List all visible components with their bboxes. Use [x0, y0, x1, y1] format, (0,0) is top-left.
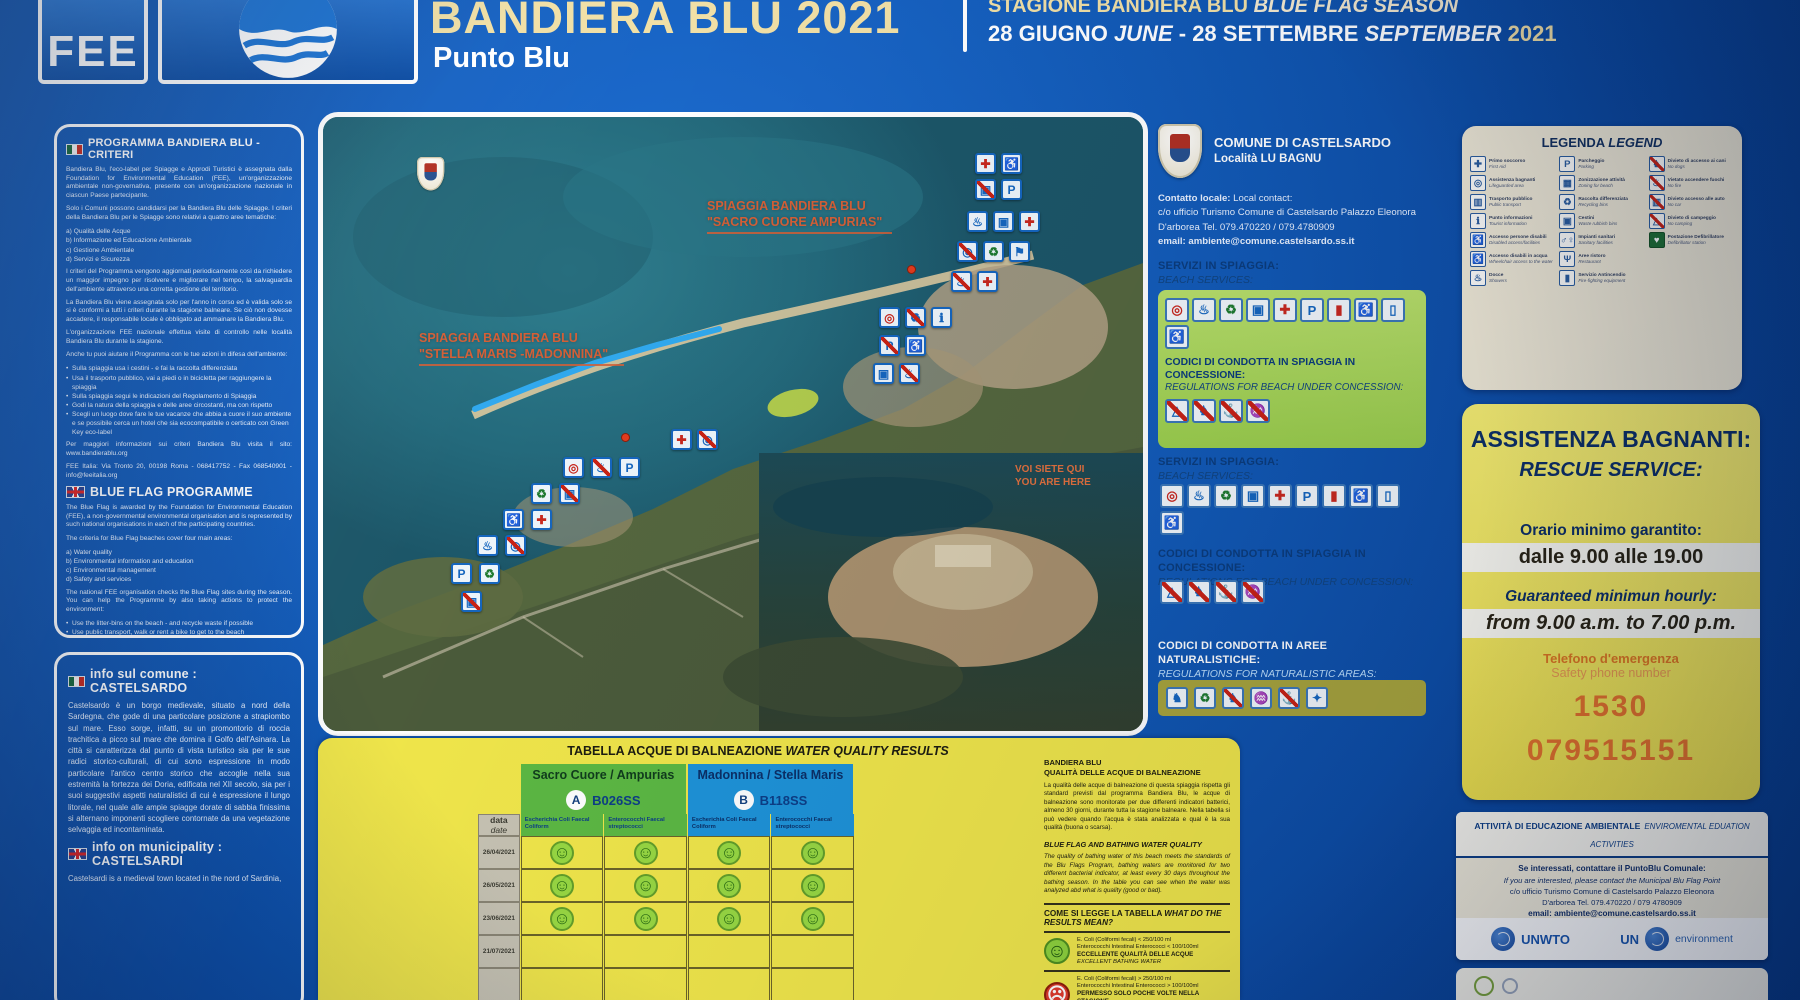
map-marker-icon: ℹ	[931, 307, 952, 328]
result-cell	[771, 968, 854, 1000]
legend-item: ♥ Postazione DefibrillatoreDefibrillator…	[1649, 232, 1734, 248]
result-cell: ☺	[521, 836, 604, 869]
legend-item: ♻ Raccolta differenziataRecycling bins	[1559, 194, 1644, 210]
legend-item: ▦ Zonizzazione attivitàZoning for beach	[1559, 175, 1644, 191]
result-cell	[604, 935, 687, 968]
result-cell: ☺	[688, 902, 771, 935]
list-item: Sulla spiaggia segui le indicazioni del …	[66, 392, 292, 401]
locality-name: Località LU BAGNU	[1214, 152, 1391, 168]
sample-date	[478, 968, 520, 1000]
season-label-en: BLUE FLAG SEASON	[1254, 0, 1458, 17]
legend-item: ♿ Accesso disabili in acquaWheelchair ac…	[1470, 251, 1555, 267]
uk-flag-icon	[66, 486, 85, 498]
legend-icon: ▦	[1559, 175, 1575, 191]
legend-item: ▥ Trasporto pubblicoPublic transport	[1470, 194, 1555, 210]
paragraph: Solo i Comuni possono candidarsi per la …	[66, 205, 292, 222]
result-cell	[521, 935, 604, 968]
legend-icon: ✚	[1470, 156, 1486, 172]
legend-icon: ♿	[1470, 251, 1486, 267]
hours-value-it: dalle 9.00 alle 19.00	[1462, 543, 1760, 572]
you-are-here-inset	[723, 453, 1143, 731]
legend-box: LEGENDA LEGEND ✚ Primo soccorsoFirst Aid…	[1462, 126, 1742, 390]
service-icon: ▮	[1322, 484, 1346, 508]
rescue-title-en: RESCUE SERVICE:	[1462, 459, 1760, 482]
result-cell: ☺	[604, 869, 687, 902]
map-marker-icon: ◎	[957, 241, 978, 262]
eco-tips-list: Sulla spiaggia usa i cestini - e fai la …	[66, 364, 292, 437]
naturalistic-icon: ♞	[1166, 687, 1188, 709]
paragraph: Bandiera Blu, l'eco-label per Spiagge e …	[66, 166, 292, 201]
legend-column-2: P ParcheggioParking ▦ Zonizzazione attiv…	[1559, 156, 1644, 286]
map-marker-icon: ♻	[905, 307, 926, 328]
map-marker-icon	[907, 265, 916, 274]
legend-item: ♨ DocceShowers	[1470, 270, 1555, 286]
unwto-globe-icon	[1491, 927, 1515, 951]
paragraph: The Blue Flag is awarded by the Foundati…	[66, 504, 292, 530]
sample-date: 21/07/2021	[478, 935, 520, 968]
legend-item: ▥ Divieto accesso alle autoNo car	[1649, 194, 1734, 210]
hours-label-it: Orario minimo garantito:	[1462, 522, 1760, 540]
italy-flag-icon	[68, 676, 85, 687]
wave-icon	[236, 0, 340, 81]
list-item: a) Water quality	[66, 548, 292, 557]
legend-icon: △	[1649, 213, 1665, 229]
beach-a-name: Sacro Cuore / Ampurias	[521, 764, 686, 786]
legend-item: ✚ Primo soccorsoFirst Aid	[1470, 156, 1555, 172]
service-icon: P	[1300, 298, 1324, 322]
smiley-bad-icon: ☹	[1044, 982, 1070, 1000]
water-quality-table: Sacro Cuore / Ampurias Madonnina / Stell…	[478, 764, 854, 1000]
service-icon: ♿	[1165, 325, 1189, 349]
paragraph: L'organizzazione FEE nazionale effettua …	[66, 329, 292, 346]
service-icon: ▣	[1241, 484, 1265, 508]
naturalistic-icon: ♻	[1194, 687, 1216, 709]
legend-icon: ℹ	[1470, 213, 1486, 229]
map-marker-icon: P	[1001, 179, 1022, 200]
naturalistic-icon: ⚓	[1278, 687, 1300, 709]
list-item: c) Environmental management	[66, 566, 292, 575]
map-marker-icon: ▣	[993, 211, 1014, 232]
prohibition-icon: ♞	[1192, 399, 1216, 423]
paragraph: The quality of bathing water of this bea…	[1044, 853, 1230, 896]
beach-label-sacro-cuore: SPIAGGIA BANDIERA BLU"SACRO CUORE AMPURI…	[707, 199, 892, 234]
page-title: BANDIERA BLU 2021	[430, 0, 900, 44]
column-header: Escherichia Coli Faecal Coliform	[688, 814, 771, 836]
sample-date: 26/04/2021	[478, 836, 520, 869]
legend-icon: P	[1559, 156, 1575, 172]
result-cell: ☺	[521, 869, 604, 902]
result-cell: ☺	[688, 836, 771, 869]
legend-column-1: ✚ Primo soccorsoFirst Aid ◎ Assistenza b…	[1470, 156, 1555, 286]
result-cell	[771, 935, 854, 968]
legend-icon: ♨	[1470, 270, 1486, 286]
legend-icon: ▥	[1649, 194, 1665, 210]
beach-a-code: B026SS	[592, 793, 640, 808]
column-header: Enterococchi Faecal streptococci	[771, 814, 854, 836]
criteria-list-en: a) Water qualityb) Environmental informa…	[66, 548, 292, 585]
map-marker-icon: ♻	[983, 241, 1004, 262]
naturalistic-icon: ♞	[1222, 687, 1244, 709]
map-marker-icon: ⚑	[1009, 241, 1030, 262]
prohibition-icon: ⚓	[1219, 399, 1243, 423]
legend-item: ♨ Vietato accendere fuochiNo fire	[1649, 175, 1734, 191]
sampling-point-a: A	[566, 790, 586, 810]
map-marker-icon: ◎	[697, 429, 718, 450]
legend-item: ▮ Servizio AntincendioFire-fighting equi…	[1559, 270, 1644, 286]
list-item: a) Qualità delle Acque	[66, 227, 292, 236]
table-row: 21/07/2021	[478, 935, 854, 968]
prohibition-icon: △	[1160, 580, 1184, 604]
service-icon: ✚	[1268, 484, 1292, 508]
programma-criteri-panel: PROGRAMMA BANDIERA BLU - CRITERI Bandier…	[54, 124, 304, 638]
result-cell: ☺	[688, 869, 771, 902]
paragraph: La qualità delle acque di balneazione di…	[1044, 782, 1230, 833]
map-marker-icon: ◎	[879, 307, 900, 328]
legend-icon: ◎	[1470, 175, 1486, 191]
section-heading: info sul comune : CASTELSARDO	[90, 667, 290, 695]
service-icon: ◎	[1165, 298, 1189, 322]
map-marker-icon: ♻	[531, 483, 552, 504]
legend-item: △ Divieto di campeggioNo camping	[1649, 213, 1734, 229]
emergency-phone-label-it: Telefono d'emergenza	[1462, 651, 1760, 666]
castelsardo-crest	[1158, 124, 1202, 178]
legend-item: Ψ Aree ristoroRestaurant	[1559, 251, 1644, 267]
service-icon: ♿	[1354, 298, 1378, 322]
map-marker-icon: ♿	[905, 335, 926, 356]
map-marker-icon: ♿	[1001, 153, 1022, 174]
list-item: b) Environmental information and educati…	[66, 557, 292, 566]
hours-label-en: Guaranteed minimun hourly:	[1462, 588, 1760, 606]
codici-heading-1: CODICI DI CONDOTTA IN SPIAGGIA IN CONCES…	[1165, 356, 1419, 394]
blue-flag-information-board: FEE BANDIERA BLU 2021 Punto Blu STAGIONE…	[0, 0, 1800, 1000]
service-icon: ♻	[1214, 484, 1238, 508]
prohibition-icon: △	[1165, 399, 1189, 423]
servizi-heading-2: SERVIZI IN SPIAGGIA:BEACH SERVICES:	[1158, 456, 1426, 483]
legend-icon: ♞	[1649, 156, 1665, 172]
paragraph: Per maggiori informazioni sui criteri Ba…	[66, 441, 292, 458]
legend-item: P ParcheggioParking	[1559, 156, 1644, 172]
servizi-heading-1: SERVIZI IN SPIAGGIA:BEACH SERVICES:	[1158, 260, 1426, 287]
header-divider	[963, 0, 967, 52]
emergency-number-1530: 1530	[1462, 690, 1760, 724]
service-icon: ♨	[1187, 484, 1211, 508]
map-marker-icon: ✚	[671, 429, 692, 450]
beach-b-code: B118SS	[760, 793, 808, 808]
section-heading: info on municipality : CASTELSARDI	[92, 840, 290, 868]
legend-icon: ♥	[1649, 232, 1665, 248]
legend-icon: ♨	[1649, 175, 1665, 191]
result-cell	[521, 968, 604, 1000]
list-item: b) Informazione ed Educazione Ambientale	[66, 236, 292, 245]
fee-logo: FEE	[38, 0, 148, 84]
list-item: c) Gestione Ambientale	[66, 246, 292, 255]
map-marker-icon: ✚	[1019, 211, 1040, 232]
hours-value-en: from 9.00 a.m. to 7.00 p.m.	[1462, 609, 1760, 638]
map-marker-icon: ▣	[461, 591, 482, 612]
list-item: d) Safety and services	[66, 575, 292, 584]
sample-date: 26/05/2021	[478, 869, 520, 902]
legend-icon: ▥	[1470, 194, 1486, 210]
section-heading: PROGRAMMA BANDIERA BLU - CRITERI	[88, 137, 292, 161]
emergency-number-local: 079515151	[1462, 734, 1760, 768]
list-item: Obey the beach code of conduct	[66, 637, 292, 638]
paragraph: Anche tu puoi aiutare il Programma con l…	[66, 351, 292, 360]
eco-tips-list-en: Use the litter-bins on the beach - and r…	[66, 619, 292, 638]
criteria-list: a) Qualità delle Acqueb) Informazione ed…	[66, 227, 292, 264]
list-item: Usa il trasporto pubblico, vai a piedi o…	[66, 374, 292, 392]
prohibition-icon: ♞	[1187, 580, 1211, 604]
map-marker-icon: ✚	[977, 271, 998, 292]
list-item: Godi la natura della spiaggia e delle ar…	[66, 401, 292, 410]
municipality-info-panel: info sul comune : CASTELSARDO Castelsard…	[54, 652, 304, 1000]
edu-title-it: ATTIVITÀ DI EDUCAZIONE AMBIENTALE	[1474, 821, 1640, 831]
table-body: 26/04/2021 ☺ ☺ ☺ ☺ 26/05/2021 ☺ ☺ ☺ ☺	[478, 836, 854, 1000]
map-marker-icon: ◎	[505, 535, 526, 556]
uk-flag-icon	[68, 848, 87, 860]
legend-item: ♿ Accesso persone disabiliDisabled acces…	[1470, 232, 1555, 248]
map-marker-icon	[621, 433, 630, 442]
list-item: d) Servizi e Sicurezza	[66, 255, 292, 264]
beach-b-name: Madonnina / Stella Maris	[688, 764, 853, 786]
sample-date: 23/06/2021	[478, 902, 520, 935]
date-column-header: datadate	[478, 814, 520, 836]
naturalistic-icon: ♒	[1250, 687, 1272, 709]
column-header: Enterococchi Faecal streptococci	[604, 814, 687, 836]
beach-services-panel: COMUNE DI CASTELSARDO Località LU BAGNU …	[1158, 120, 1426, 724]
map-marker-icon: ▣	[975, 179, 996, 200]
paragraph: Castelsardi is a medieval town located i…	[68, 873, 290, 884]
municipality-name: COMUNE DI CASTELSARDO	[1214, 134, 1391, 152]
water-quality-explanation: BANDIERA BLU QUALITÀ DELLE ACQUE DI BALN…	[1044, 758, 1230, 1000]
list-item: Scegli un luogo dove fare le tue vacanze…	[66, 410, 292, 437]
result-cell	[688, 935, 771, 968]
service-icon: ♿	[1160, 511, 1184, 535]
italy-flag-icon	[66, 144, 83, 155]
map-marker-icon: ✚	[975, 153, 996, 174]
map-marker-icon: ♨	[591, 457, 612, 478]
service-icon: ▯	[1376, 484, 1400, 508]
emergency-phone-label-en: Safety phone number	[1462, 666, 1760, 680]
local-contact: Contatto locale: Local contact: c/o uffi…	[1158, 192, 1416, 250]
legend-item: ♞ Divieto di accesso ai caniNo dogs	[1649, 156, 1734, 172]
column-header: Escherichia Coli Faecal Coliform	[521, 814, 604, 836]
table-row: 26/05/2021 ☺ ☺ ☺ ☺	[478, 869, 854, 902]
map-marker-icon: ♨	[477, 535, 498, 556]
season-dates: STAGIONE BANDIERA BLU BLUE FLAG SEASON 2…	[988, 0, 1608, 47]
map-marker-icon: ◎	[563, 457, 584, 478]
map-marker-icon: P	[619, 457, 640, 478]
paragraph: The criteria for Blue Flag beaches cover…	[66, 535, 292, 544]
result-cell: ☺	[771, 869, 854, 902]
prohibition-icons-row-2: △♞⚓♒	[1160, 580, 1265, 604]
sampling-point-b: B	[734, 790, 754, 810]
page-subtitle: Punto Blu	[433, 42, 570, 75]
partial-logo-box	[1456, 968, 1768, 1000]
table-row: 26/04/2021 ☺ ☺ ☺ ☺	[478, 836, 854, 869]
service-icons-row-2: ◎♨♻▣✚P▮♿▯♿	[1160, 484, 1426, 535]
legend-item: ▣ CestiniWaste rubbish bins	[1559, 213, 1644, 229]
result-cell: ☺	[771, 902, 854, 935]
result-cell: ☺	[521, 902, 604, 935]
map-marker-icon: P	[879, 335, 900, 356]
legend-icon: ♿	[1470, 232, 1486, 248]
environmental-education-box: ATTIVITÀ DI EDUCAZIONE AMBIENTALEENVIROM…	[1456, 812, 1768, 960]
map-marker-icon: P	[451, 563, 472, 584]
list-item: Sulla spiaggia usa i cestini - e fai la …	[66, 364, 292, 373]
service-icons-row: ◎♨♻▣✚P▮♿▯♿	[1165, 298, 1419, 349]
legend-icon: ♂♀	[1559, 232, 1575, 248]
rescue-title-it: ASSISTENZA BAGNANTI:	[1462, 404, 1760, 453]
map-marker-icon: ♨	[951, 271, 972, 292]
prohibition-icon: ♒	[1241, 580, 1265, 604]
aerial-map: SPIAGGIA BANDIERA BLU"SACRO CUORE AMPURI…	[318, 112, 1148, 736]
list-item: Use the litter-bins on the beach - and r…	[66, 619, 292, 628]
beach-label-stella-maris: SPIAGGIA BANDIERA BLU"STELLA MARIS -MADO…	[419, 331, 624, 366]
legend-item: ◎ Assistenza bagnantiLifeguarded area	[1470, 175, 1555, 191]
prohibition-icon: ⚓	[1214, 580, 1238, 604]
map-marker-icon: ▣	[873, 363, 894, 384]
un-environment-logo: UN environment	[1620, 927, 1733, 951]
partial-circle-logo-icon-2	[1502, 978, 1518, 994]
paragraph: The national FEE organisation checks the…	[66, 589, 292, 615]
service-icon: P	[1295, 484, 1319, 508]
table-row	[478, 968, 854, 1000]
section-heading: BLUE FLAG PROGRAMME	[90, 485, 253, 499]
rescue-service-box: ASSISTENZA BAGNANTI: RESCUE SERVICE: Ora…	[1462, 404, 1760, 800]
service-icon: ♿	[1349, 484, 1373, 508]
prohibition-icons-row: △♞⚓♒	[1165, 399, 1419, 423]
service-icon: ▣	[1246, 298, 1270, 322]
service-icon: ▯	[1381, 298, 1405, 322]
season-label-it: STAGIONE BANDIERA BLU	[988, 0, 1248, 17]
legend-icon: Ψ	[1559, 251, 1575, 267]
water-quality-panel: TABELLA ACQUE DI BALNEAZIONE WATER QUALI…	[318, 738, 1240, 1000]
table-title-en: WATER QUALITY RESULTS	[786, 744, 949, 758]
legend-icon: ▣	[1559, 213, 1575, 229]
paragraph: FEE Italia: Via Tronto 20, 00198 Roma - …	[66, 463, 292, 480]
service-icon: ✚	[1273, 298, 1297, 322]
castelsardo-crest-on-map	[417, 157, 444, 190]
fee-logo-label: FEE	[47, 30, 139, 80]
legend-item: ℹ Punto informazioniTourist information	[1470, 213, 1555, 229]
bad-result-legend: ☹ E. Coli (Coliformi fecali) > 250/100 m…	[1044, 976, 1230, 1000]
blue-flag-wave-logo	[158, 0, 418, 84]
naturalistic-icons-row: ♞♻♞♒⚓✦	[1158, 680, 1426, 716]
you-are-here-label: VOI SIETE QUIYOU ARE HERE	[1015, 463, 1091, 489]
result-cell: ☺	[771, 836, 854, 869]
legend-column-3: ♞ Divieto di accesso ai caniNo dogs ♨ Vi…	[1649, 156, 1734, 286]
service-icon: ♨	[1192, 298, 1216, 322]
legend-icon: ♻	[1559, 194, 1575, 210]
paragraph: Castelsardo è un borgo medievale, situat…	[68, 700, 290, 836]
naturalistic-icon: ✦	[1306, 687, 1328, 709]
services-green-box: ◎♨♻▣✚P▮♿▯♿ CODICI DI CONDOTTA IN SPIAGGI…	[1158, 290, 1426, 448]
result-cell: ☺	[604, 836, 687, 869]
table-title-it: TABELLA ACQUE DI BALNEAZIONE	[567, 744, 782, 758]
map-marker-icon: ✚	[531, 509, 552, 530]
map-marker-icon: ♨	[899, 363, 920, 384]
paragraph: I criteri del Programma vengono aggiorna…	[66, 268, 292, 294]
service-icon: ▮	[1327, 298, 1351, 322]
prohibition-icon: ♒	[1246, 399, 1270, 423]
service-icon: ◎	[1160, 484, 1184, 508]
map-marker-icon: ▣	[559, 483, 580, 504]
list-item: Use public transport, walk or rent a bik…	[66, 628, 292, 637]
result-cell: ☺	[604, 902, 687, 935]
map-marker-icon: ♻	[479, 563, 500, 584]
map-marker-icon: ♿	[503, 509, 524, 530]
table-row: 23/06/2021 ☺ ☺ ☺ ☺	[478, 902, 854, 935]
smiley-good-icon: ☺	[1044, 938, 1070, 964]
map-marker-icon: ♨	[967, 211, 988, 232]
paragraph: La Bandiera Blu viene assegnata solo per…	[66, 299, 292, 325]
un-environment-icon	[1645, 927, 1669, 951]
service-icon: ♻	[1219, 298, 1243, 322]
legend-icon: ▮	[1559, 270, 1575, 286]
partial-circle-logo-icon	[1474, 976, 1494, 996]
legend-item: ♂♀ Impianti sanitariSanitary facilities	[1559, 232, 1644, 248]
good-result-legend: ☺ E. Coli (Coliformi fecali) < 250/100 m…	[1044, 937, 1230, 966]
result-cell	[688, 968, 771, 1000]
aree-naturalistiche-heading: CODICI DI CONDOTTA IN AREE NATURALISTICH…	[1158, 640, 1426, 681]
result-cell	[604, 968, 687, 1000]
unwto-logo: UNWTO	[1491, 927, 1570, 951]
